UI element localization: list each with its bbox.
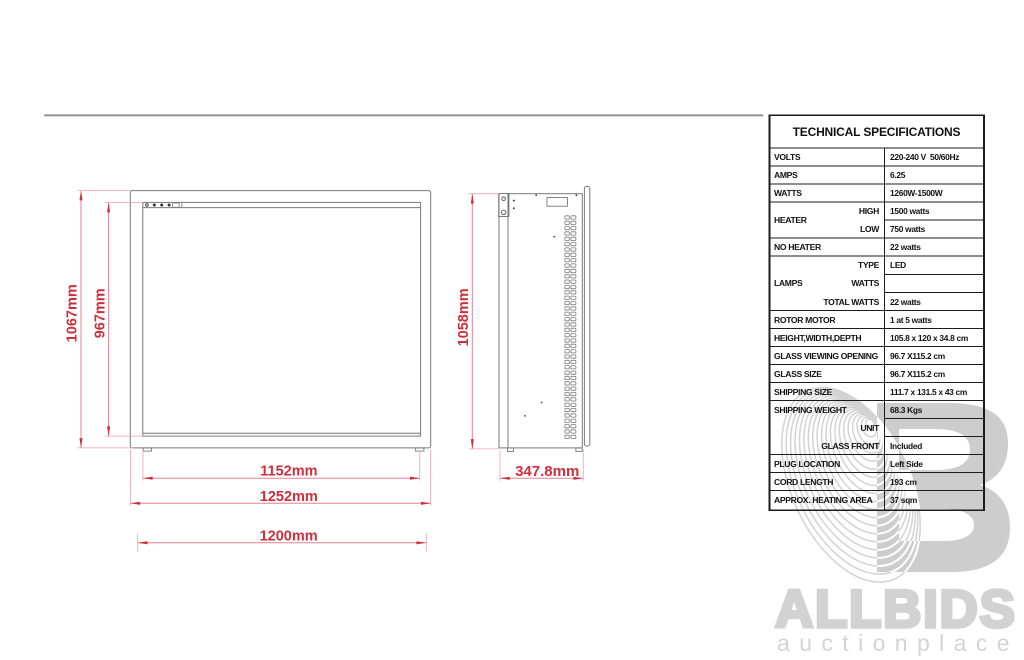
svg-text:1152mm: 1152mm — [260, 464, 317, 480]
svg-text:1058mm: 1058mm — [456, 288, 472, 346]
svg-text:347.8mm: 347.8mm — [515, 463, 579, 480]
svg-text:967mm: 967mm — [92, 288, 108, 338]
svg-text:1252mm: 1252mm — [260, 489, 318, 505]
svg-text:1067mm: 1067mm — [65, 284, 81, 342]
svg-text:1200mm: 1200mm — [260, 529, 318, 545]
svg-text:auctionplace: auctionplace — [777, 630, 1019, 656]
